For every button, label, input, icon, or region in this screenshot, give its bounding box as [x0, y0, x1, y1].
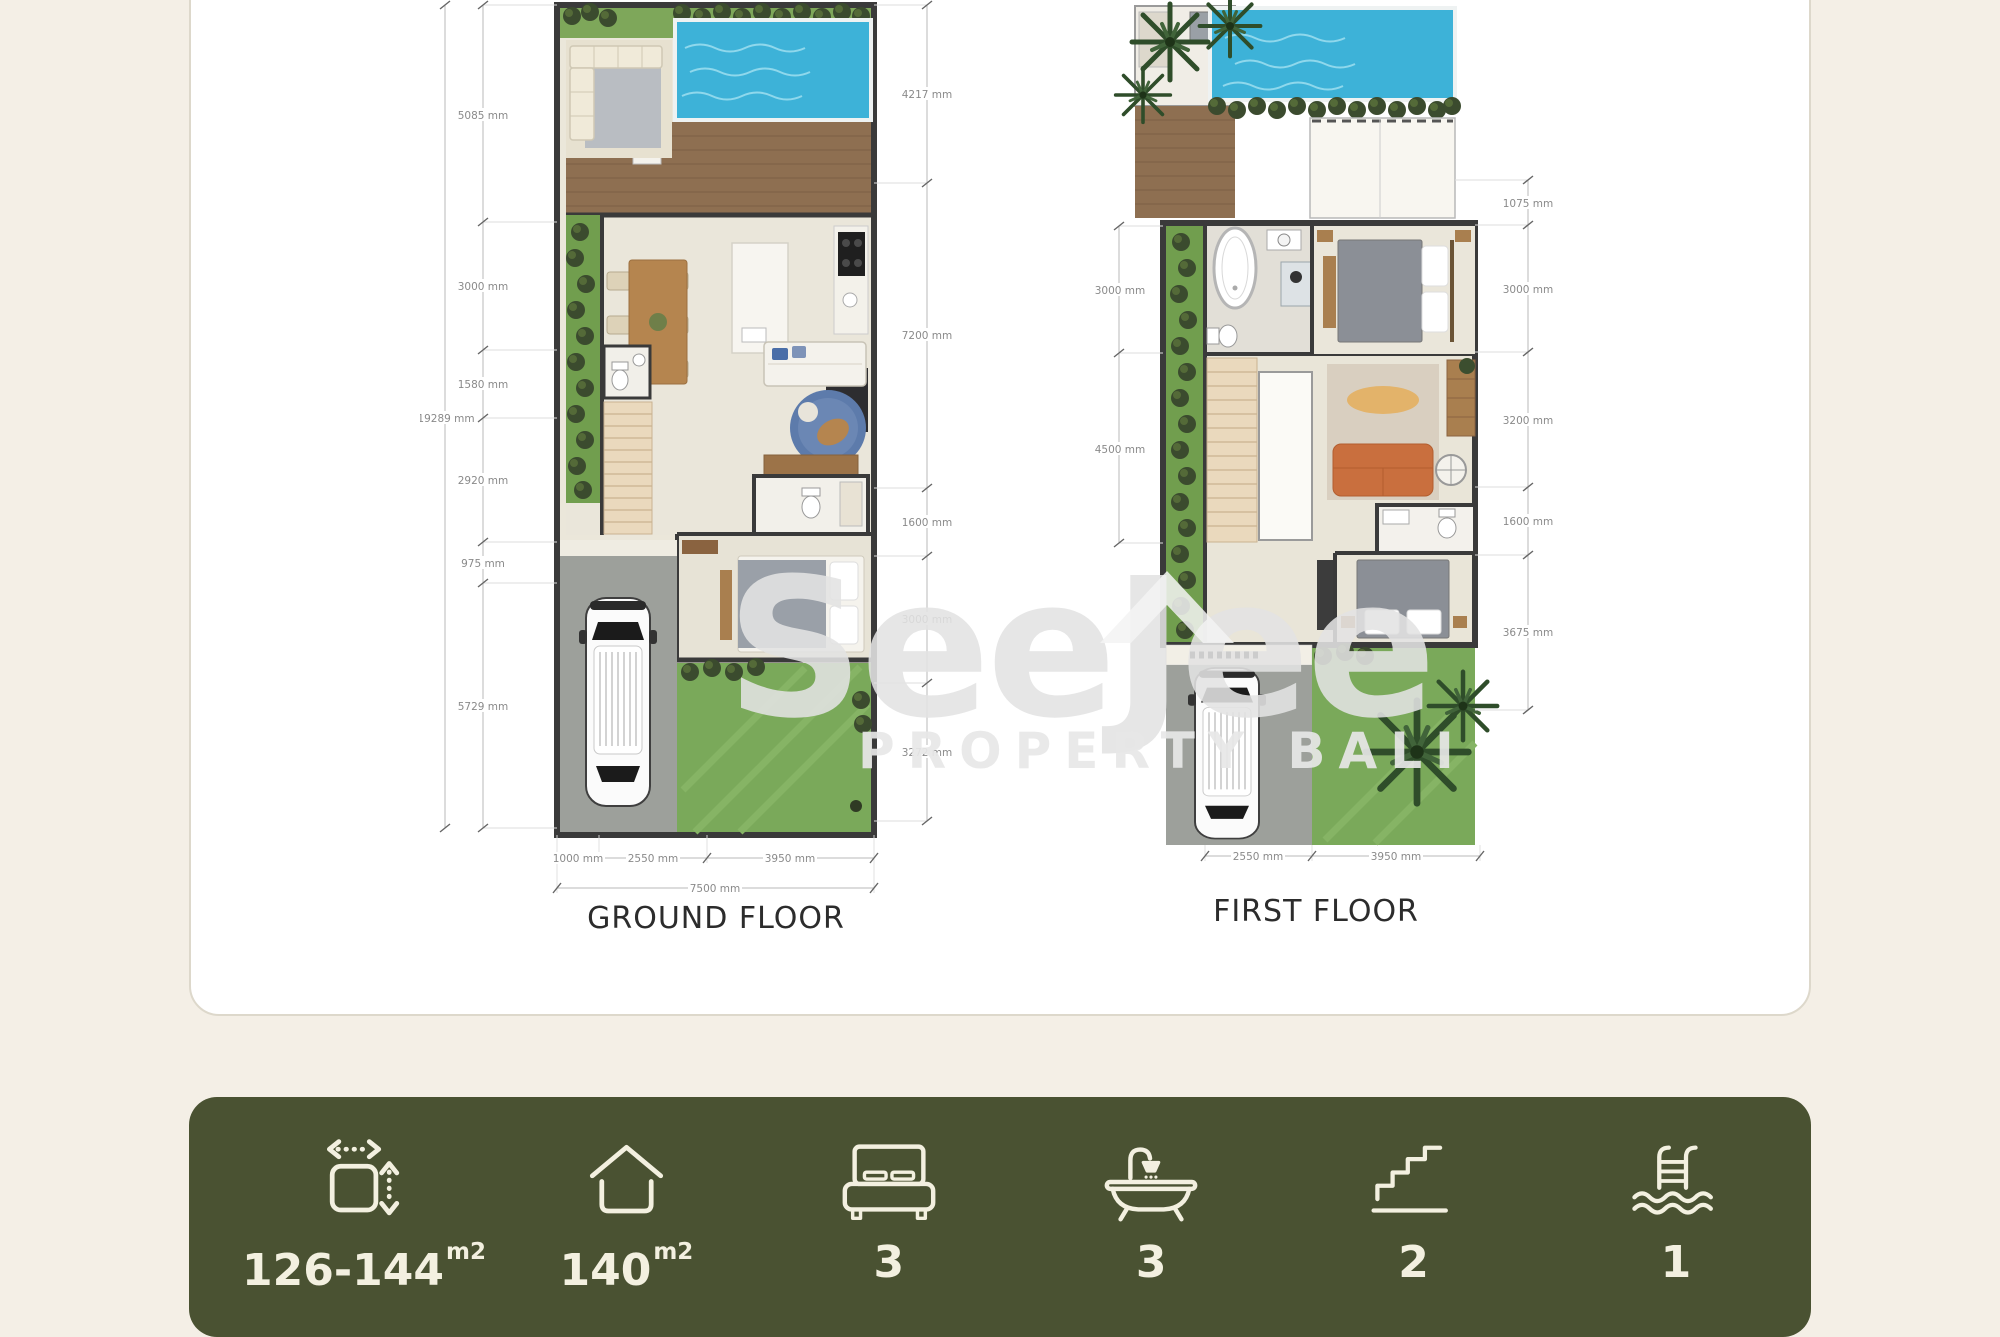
svg-text:3000 mm: 3000 mm — [902, 614, 953, 626]
dimension-label: 3950 mm — [763, 852, 817, 865]
dimension-label: 4217 mm — [900, 87, 954, 101]
dimension-label: 3272 mm — [900, 745, 954, 759]
svg-text:7500 mm: 7500 mm — [690, 883, 741, 895]
svg-text:3200 mm: 3200 mm — [1503, 415, 1554, 427]
pools-value: 1 — [1661, 1241, 1692, 1285]
dimension-label: 19289 mm — [420, 411, 475, 425]
plant — [1459, 358, 1475, 374]
powder-room — [604, 346, 650, 398]
svg-text:2550 mm: 2550 mm — [1233, 851, 1284, 863]
dimension-label: 3000 mm — [1095, 283, 1147, 297]
terrace — [1310, 118, 1455, 218]
dimension-label: 3950 mm — [1369, 850, 1423, 863]
svg-text:3950 mm: 3950 mm — [1371, 851, 1422, 863]
building-size-value: 140m2 — [559, 1241, 693, 1293]
pool-ladder-icon — [1623, 1131, 1728, 1231]
dimension-label: 1075 mm — [1501, 196, 1555, 210]
dimension-label: 4500 mm — [1095, 442, 1147, 456]
dimension-label: 7200 mm — [900, 328, 954, 342]
svg-text:3272 mm: 3272 mm — [902, 747, 953, 759]
stair-void — [1259, 372, 1312, 540]
svg-text:7200 mm: 7200 mm — [902, 330, 953, 342]
dimension-label: 2920 mm — [456, 473, 510, 487]
svg-text:3000 mm: 3000 mm — [1095, 285, 1145, 297]
planter-strip-left — [566, 215, 602, 503]
dimension-label: 2550 mm — [1231, 850, 1285, 863]
bathtub-icon — [1097, 1131, 1205, 1231]
stat-pools: 1 — [1571, 1131, 1781, 1285]
bathroom-2 — [1377, 505, 1475, 553]
dimension-label: 7500 mm — [688, 882, 742, 895]
stat-land-size: 126-144m2 — [259, 1131, 469, 1293]
dimension-label: 3000 mm — [1501, 282, 1555, 296]
dimension-label: 1000 mm — [551, 852, 605, 865]
ground-floor-title: GROUND FLOOR — [496, 901, 936, 936]
page: { "watermark": { "brand": "SeeJee", "sub… — [0, 0, 2000, 1312]
stairs — [1207, 358, 1312, 542]
bed — [1338, 240, 1422, 342]
swimming-pool — [1210, 8, 1455, 100]
dimension-label: 1600 mm — [1501, 514, 1555, 528]
svg-text:19289 mm: 19289 mm — [420, 413, 475, 425]
bathrooms-value: 3 — [1136, 1241, 1167, 1285]
ground-floor-plan: 5085 mm 3000 mm 1580 mm 2920 mm 975 mm 5… — [420, 0, 960, 910]
stat-building-size: 140m2 — [521, 1131, 731, 1293]
svg-text:3950 mm: 3950 mm — [765, 853, 816, 865]
land-size-value: 126-144m2 — [242, 1241, 486, 1293]
master-bathroom — [1207, 226, 1312, 354]
dimension-label: 3000 mm — [456, 279, 510, 293]
dimension-label: 1580 mm — [456, 377, 510, 391]
car — [1188, 668, 1266, 839]
dimension-label: 3200 mm — [1501, 413, 1555, 427]
sofa — [764, 342, 866, 386]
svg-text:2920 mm: 2920 mm — [458, 475, 509, 487]
house-icon — [579, 1131, 674, 1231]
stairs — [604, 402, 652, 534]
stat-floors: 2 — [1309, 1131, 1519, 1285]
svg-text:1000 mm: 1000 mm — [553, 853, 604, 865]
dimension-label: 5085 mm — [456, 108, 510, 122]
floors-value: 2 — [1398, 1241, 1429, 1285]
dimension-label: 3675 mm — [1501, 625, 1555, 639]
svg-text:975 mm: 975 mm — [461, 558, 505, 570]
planter-strip-left — [1166, 226, 1204, 642]
car — [579, 598, 657, 806]
svg-text:5085 mm: 5085 mm — [458, 110, 509, 122]
svg-text:1580 mm: 1580 mm — [458, 379, 509, 391]
outdoor-lounge — [566, 40, 672, 158]
svg-text:1600 mm: 1600 mm — [1503, 516, 1554, 528]
svg-text:2550 mm: 2550 mm — [628, 853, 679, 865]
bedroom-1 — [1314, 226, 1475, 354]
kitchen-island — [732, 243, 788, 353]
area-dimensions-icon — [317, 1131, 412, 1231]
svg-text:4217 mm: 4217 mm — [902, 89, 953, 101]
bedrooms-value: 3 — [873, 1241, 904, 1285]
dimension-label: 3000 mm — [900, 612, 954, 626]
tv-console — [764, 455, 858, 475]
bed-icon — [835, 1131, 943, 1231]
dimension-label: 1600 mm — [900, 515, 954, 529]
garden — [677, 658, 872, 832]
svg-text:3000 mm: 3000 mm — [458, 281, 509, 293]
bathroom — [754, 476, 868, 534]
stat-bedrooms: 3 — [784, 1131, 994, 1285]
stat-bathrooms: 3 — [1046, 1131, 1256, 1285]
svg-text:5729 mm: 5729 mm — [458, 701, 509, 713]
svg-text:4500 mm: 4500 mm — [1095, 444, 1145, 456]
svg-text:3675 mm: 3675 mm — [1503, 627, 1554, 639]
dimension-label: 975 mm — [456, 556, 510, 570]
stats-bar: 126-144m2 140m2 3 — [189, 1097, 1811, 1337]
swimming-pool — [675, 20, 871, 120]
garden — [1312, 643, 1497, 845]
svg-text:1075 mm: 1075 mm — [1503, 198, 1554, 210]
family-room — [1327, 358, 1475, 500]
first-floor-plan: 3000 mm 4500 mm 1075 mm 3000 mm 3200 mm … — [1095, 0, 1575, 900]
first-floor-title: FIRST FLOOR — [1096, 894, 1536, 929]
bedroom — [677, 534, 871, 660]
dimension-label: 5729 mm — [456, 699, 510, 713]
svg-text:3000 mm: 3000 mm — [1503, 284, 1554, 296]
stairs-icon — [1366, 1131, 1461, 1231]
walkway — [1166, 645, 1312, 665]
wood-deck — [1135, 106, 1235, 218]
kitchen-counter — [834, 226, 868, 334]
svg-text:1600 mm: 1600 mm — [902, 517, 953, 529]
dimension-label: 2550 mm — [626, 852, 680, 865]
